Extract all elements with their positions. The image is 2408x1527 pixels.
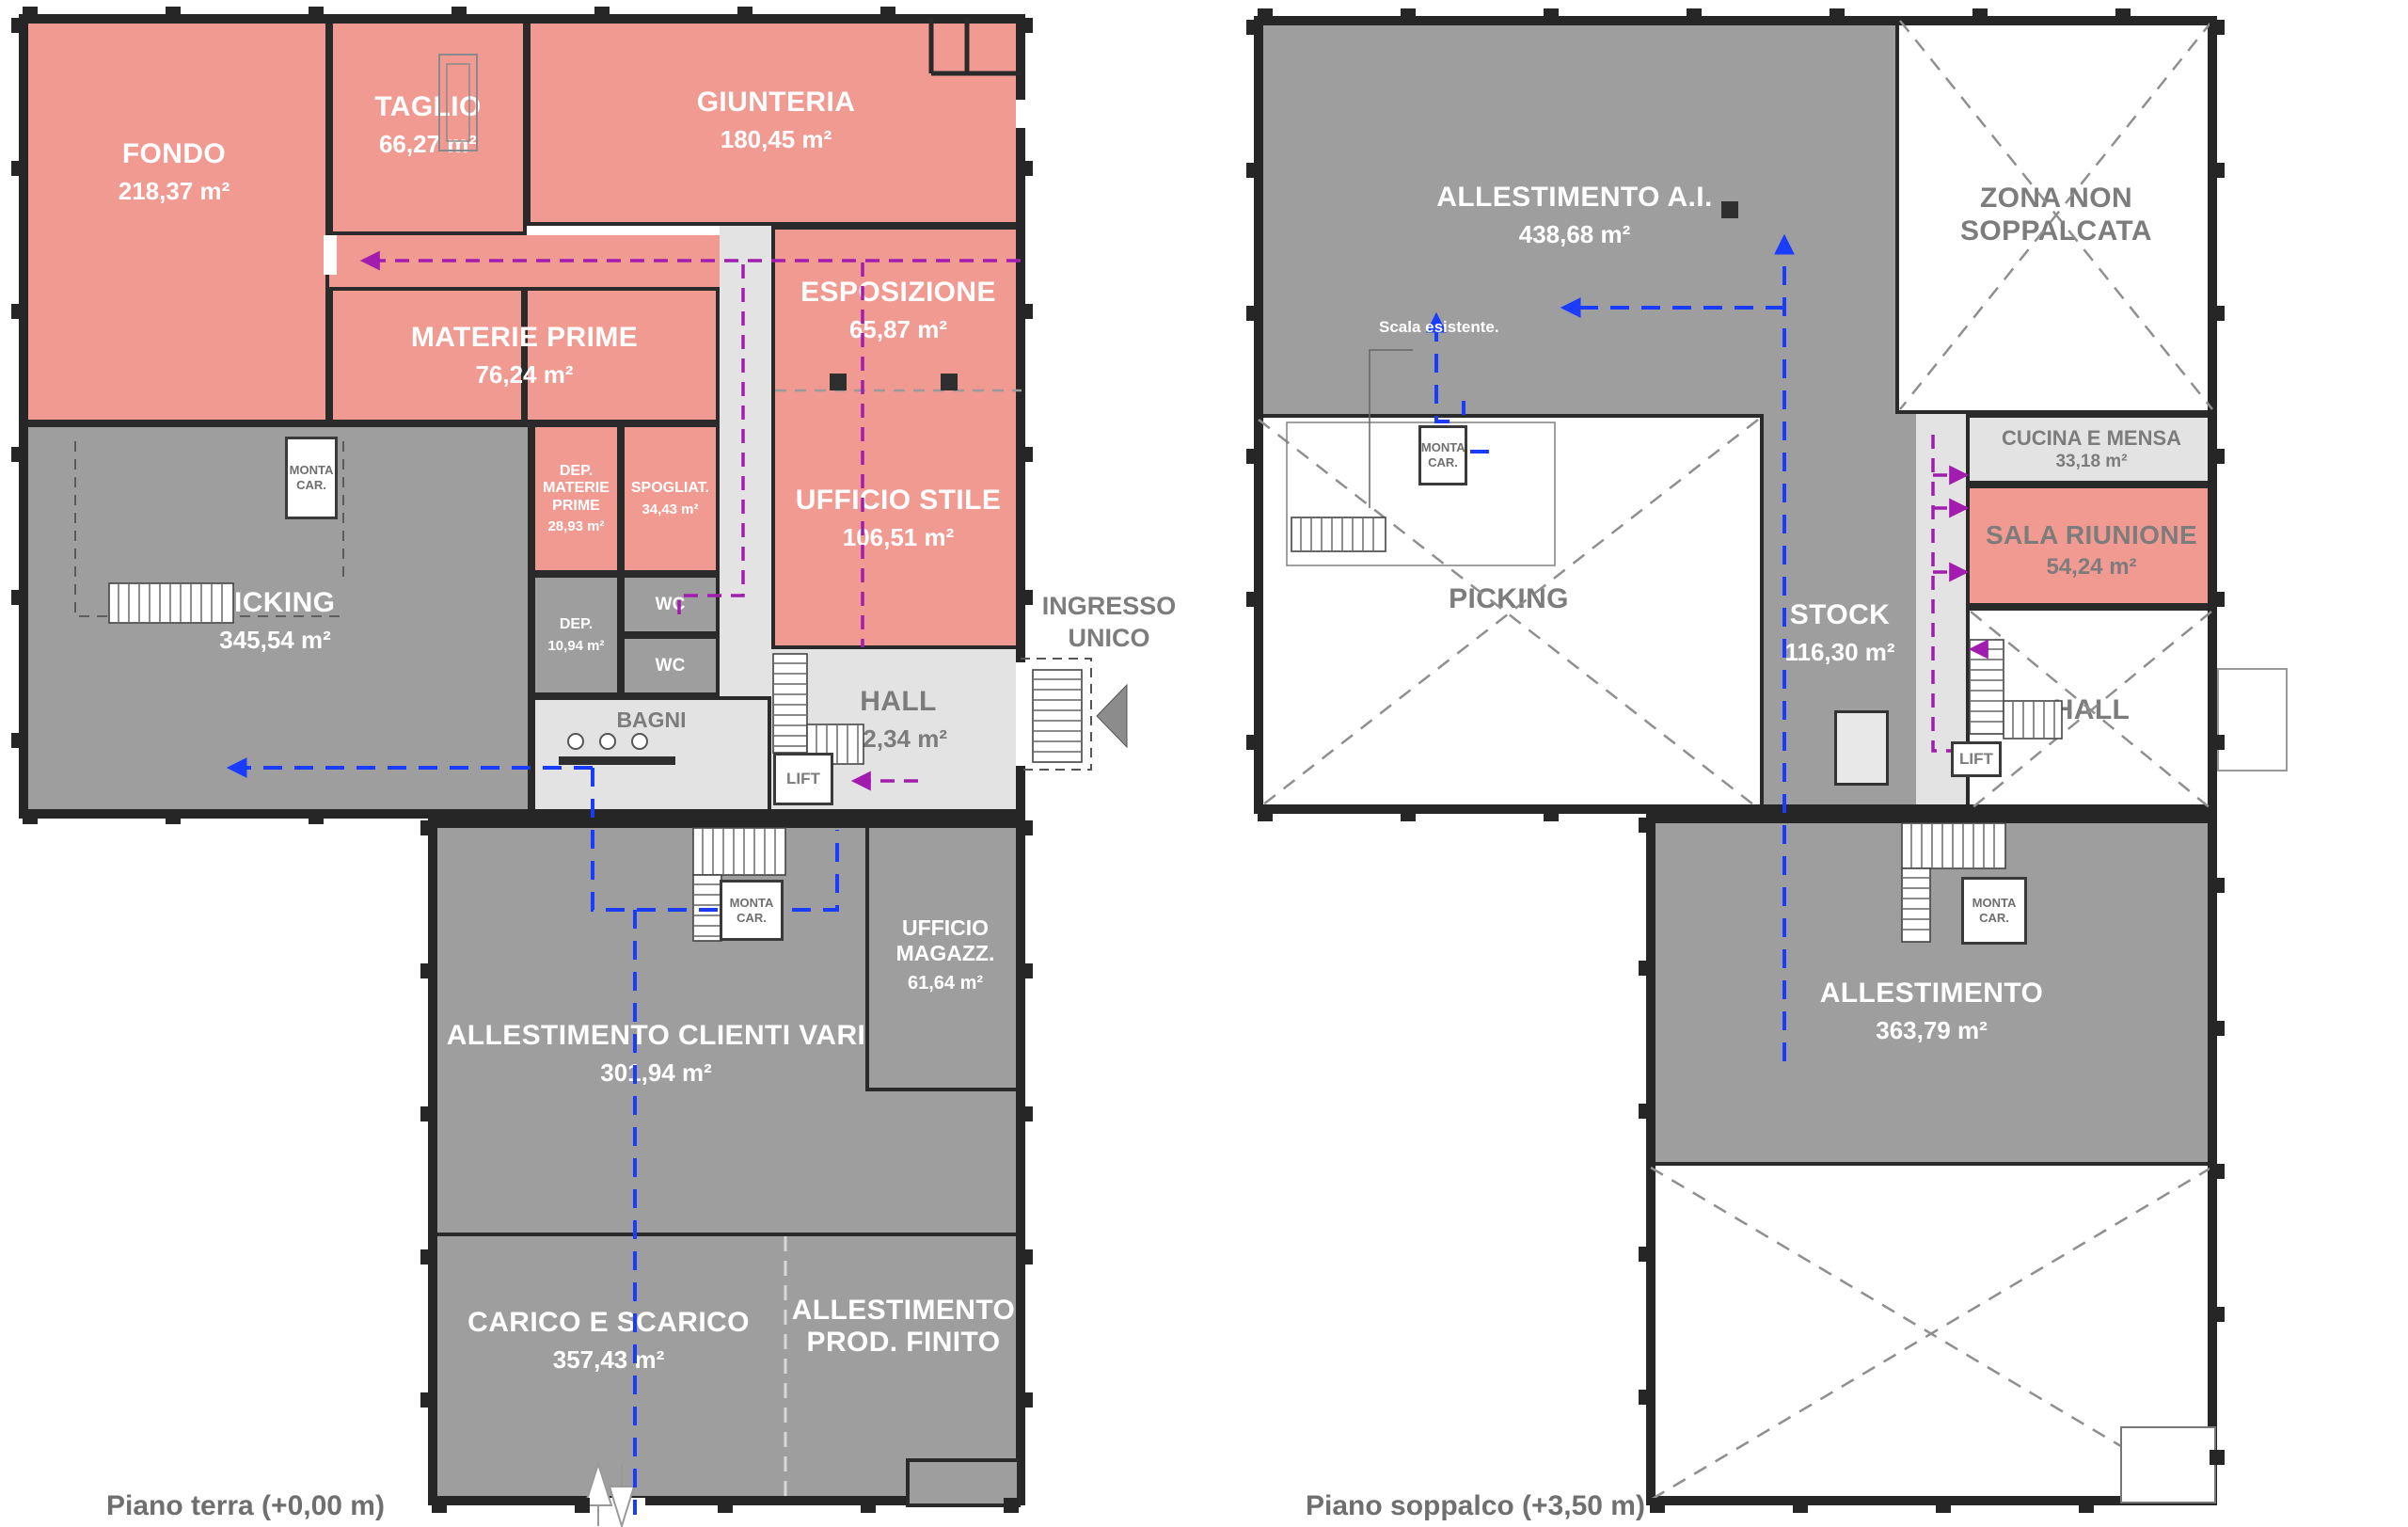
room-ufficio-magazzino: UFFICIO MAGAZZ. 61,64 m²	[865, 819, 1025, 1091]
goods-lift-box: MONTA CAR.	[1961, 877, 2027, 945]
room-taglio: TAGLIO 66,27 m²	[329, 14, 527, 235]
room-zona-non-soppalcata: ZONA NON SOPPALCATA	[1895, 16, 2217, 414]
corridor-light	[720, 226, 771, 696]
room-carico-scarico: CARICO E SCARICO 357,43 m²	[428, 1233, 785, 1505]
room-wc-2: WC	[621, 635, 720, 696]
goods-lift-box: MONTA CAR.	[1418, 425, 1467, 485]
room-sala-riunione: SALA RIUNIONE 54,24 m²	[1966, 485, 2217, 607]
floor-caption-soppalco: Piano soppalco (+3,50 m)	[1306, 1490, 1645, 1522]
floor-caption-terra: Piano terra (+0,00 m)	[106, 1490, 385, 1522]
room-esposizione: ESPOSIZIONE 65,87 m²	[771, 226, 1025, 390]
entrance-arrow	[1097, 685, 1127, 747]
corridor-pink	[329, 235, 720, 287]
goods-lift-box: MONTA CAR.	[285, 437, 338, 519]
zone-open-below	[1646, 1162, 2217, 1505]
room-spogliatoio: SPOGLIAT. 34,43 m²	[621, 423, 720, 574]
room-hall-soppalco: HALL	[1966, 607, 2217, 814]
room-allestimento-ai: ALLESTIMENTO A.I. 438,68 m²	[1254, 16, 1895, 414]
room-allestimento-soppalco: ALLESTIMENTO 363,79 m²	[1646, 814, 2217, 1162]
room-wc-1: WC	[621, 574, 720, 635]
goods-lift-box: MONTA CAR.	[720, 880, 784, 941]
wc-box	[1834, 710, 1889, 786]
floor-plan-sheet: FONDO 218,37 m² TAGLIO 66,27 m² GIUNTERI…	[0, 0, 2408, 1527]
room-bagni: BAGNI	[531, 696, 771, 819]
room-ufficio-stile: UFFICIO STILE 106,51 m²	[771, 390, 1025, 649]
partition-wall	[521, 291, 528, 420]
room-picking-soppalco: PICKING	[1254, 414, 1764, 814]
room-cucina-mensa: CUCINA E MENSA 33,18 m²	[1966, 414, 2217, 485]
stair-note: Scala esistente.	[1379, 318, 1558, 337]
room-allestimento-prod-finito: ALLESTIMENTO PROD. FINITO	[785, 1233, 1025, 1505]
entrance-label: INGRESSO UNICO	[1025, 591, 1193, 655]
room-dep-materie-prime: DEP. MATERIE PRIME 28,93 m²	[531, 423, 621, 574]
room-giunteria: GIUNTERIA 180,45 m²	[527, 14, 1025, 226]
lift-box: LIFT	[773, 753, 833, 805]
balcony-box	[2217, 668, 2288, 771]
room-deposito: DEP. 10,94 m²	[531, 574, 621, 696]
room-materie-prime: MATERIE PRIME 76,24 m²	[329, 287, 720, 423]
room-picking-terra: PICKING 345,54 m²	[19, 423, 531, 819]
lift-box: LIFT	[1951, 741, 2002, 777]
room-fondo: FONDO 218,37 m²	[19, 14, 329, 423]
